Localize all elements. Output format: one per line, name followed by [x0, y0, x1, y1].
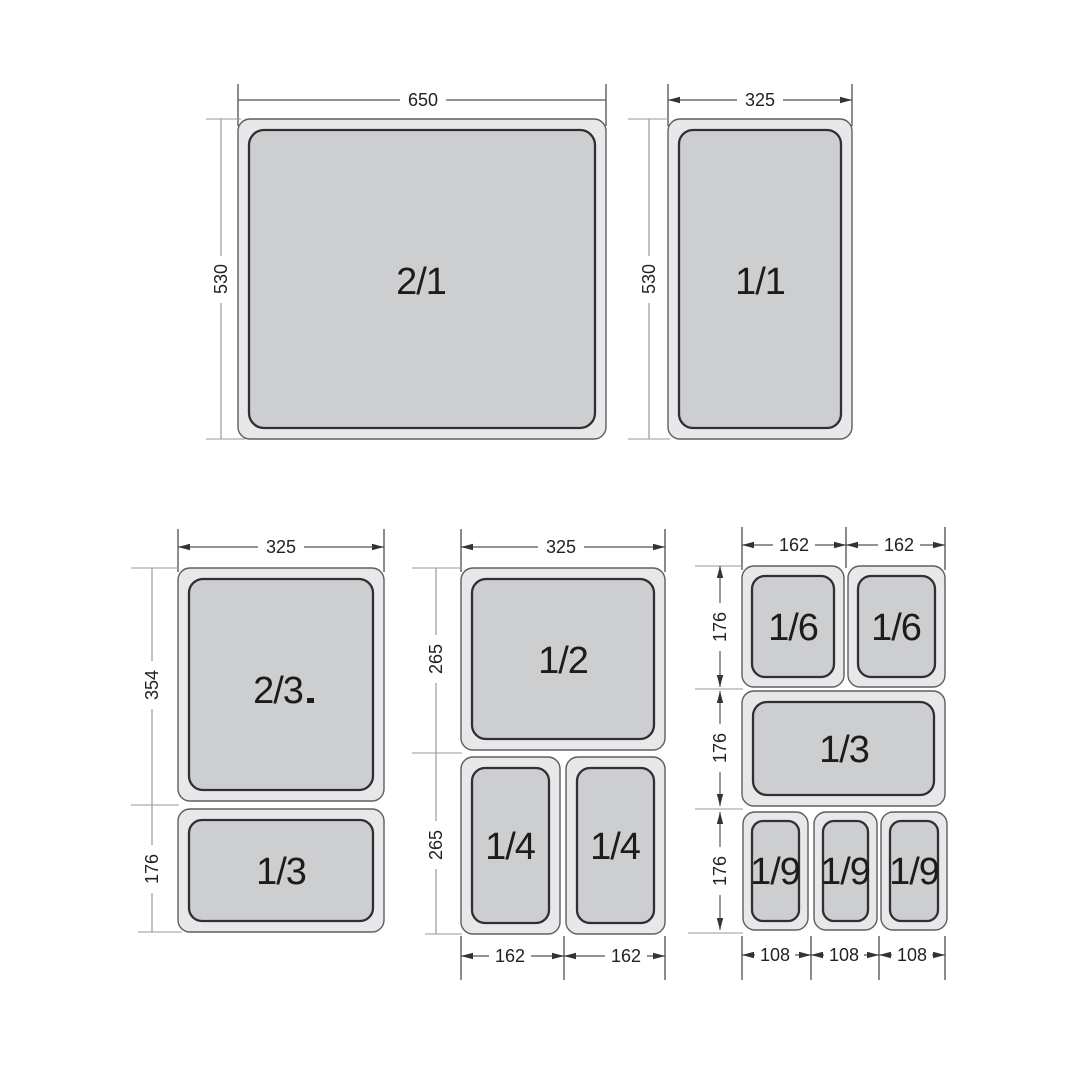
svg-text:162: 162 [611, 946, 641, 966]
svg-text:108: 108 [760, 945, 790, 965]
svg-text:2/3: 2/3 [253, 670, 303, 712]
svg-text:325: 325 [546, 537, 576, 557]
svg-text:1/6: 1/6 [768, 607, 818, 649]
svg-text:530: 530 [211, 264, 231, 294]
svg-text:162: 162 [495, 946, 525, 966]
svg-text:265: 265 [426, 830, 446, 860]
svg-text:650: 650 [408, 90, 438, 110]
svg-text:176: 176 [142, 854, 162, 884]
svg-text:325: 325 [745, 90, 775, 110]
svg-text:530: 530 [639, 264, 659, 294]
svg-text:2/1: 2/1 [396, 261, 446, 303]
svg-text:1/4: 1/4 [485, 826, 536, 868]
svg-text:1/9: 1/9 [820, 851, 870, 893]
svg-text:162: 162 [884, 535, 914, 555]
svg-text:176: 176 [710, 733, 730, 763]
svg-text:354: 354 [142, 670, 162, 700]
svg-text:1/3: 1/3 [256, 851, 306, 893]
svg-text:108: 108 [897, 945, 927, 965]
svg-text:108: 108 [829, 945, 859, 965]
svg-text:1/9: 1/9 [750, 851, 800, 893]
svg-text:1/2: 1/2 [538, 640, 588, 682]
svg-text:162: 162 [779, 535, 809, 555]
svg-text:1/3: 1/3 [819, 729, 869, 771]
svg-text:325: 325 [266, 537, 296, 557]
svg-text:1/9: 1/9 [889, 851, 939, 893]
svg-text:176: 176 [710, 856, 730, 886]
svg-text:176: 176 [710, 612, 730, 642]
svg-text:1/6: 1/6 [871, 607, 921, 649]
svg-text:1/4: 1/4 [590, 826, 641, 868]
svg-text:1/1: 1/1 [735, 261, 785, 303]
svg-text:265: 265 [426, 644, 446, 674]
